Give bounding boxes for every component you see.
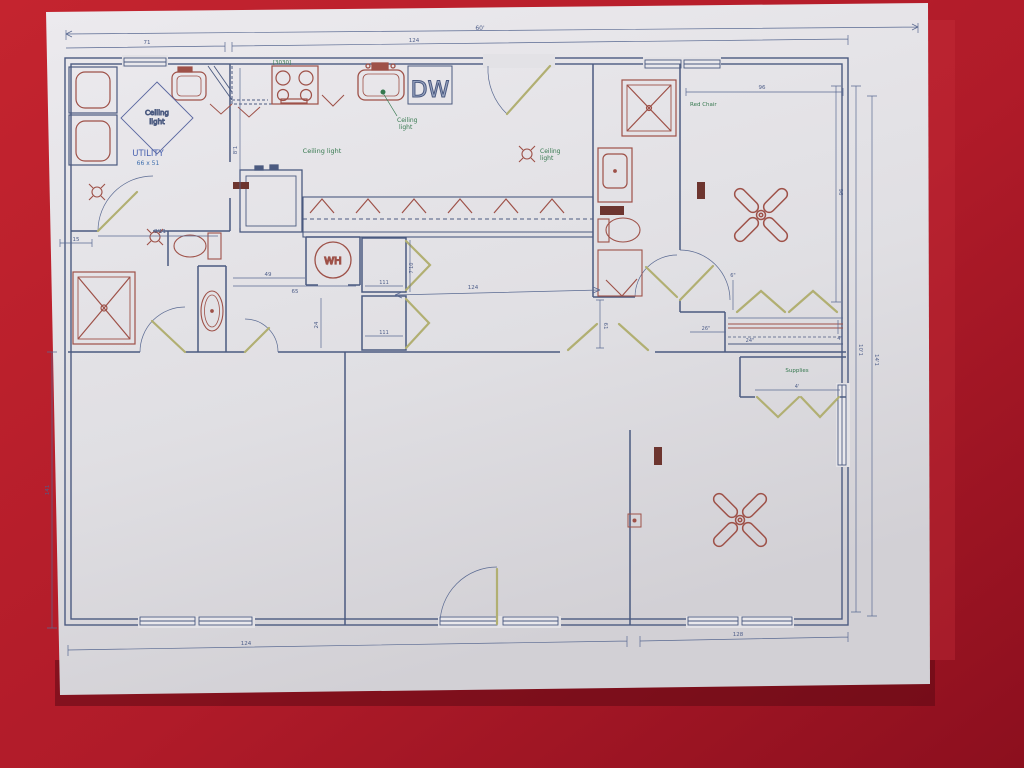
dim-label: 8'11: [154, 229, 166, 235]
dim-label: 124: [409, 38, 420, 44]
floor-vent: [654, 447, 662, 465]
dim-label: 96: [837, 189, 843, 196]
dim-label: 26": [702, 326, 711, 332]
dim-label: 49: [265, 272, 272, 278]
ceiling-light-label: Ceiling: [397, 117, 418, 124]
paper-sheet: [46, 3, 930, 695]
ceiling-light-label: Ceiling: [540, 148, 561, 155]
dishwasher-label: DW: [411, 78, 450, 103]
kitchen-vent: [233, 182, 249, 189]
floor-vent: [697, 182, 705, 199]
bath-vent: [600, 206, 624, 215]
dim-label: 96: [759, 85, 766, 91]
dim-label: 111: [379, 330, 389, 336]
dim-label: 60': [475, 25, 485, 32]
dim-label: 141: [45, 485, 51, 496]
dim-label: 4': [795, 384, 800, 390]
dim-label: 65: [292, 289, 299, 295]
dim-label: 7'10: [409, 263, 415, 274]
window: [688, 617, 738, 625]
red-chair-label: Red Chair: [690, 102, 717, 108]
window: [684, 60, 720, 68]
ceiling-light-label: light: [399, 124, 413, 131]
ceiling-light-label: light: [149, 118, 165, 126]
dim-label: 6": [730, 273, 735, 279]
ceiling-light-label: Ceiling light: [303, 147, 342, 155]
ceiling-light-label: light: [540, 155, 554, 162]
supplies-label: Supplies: [785, 368, 808, 374]
dim-label: 10'1: [857, 344, 863, 356]
water-heater-label: WH: [324, 256, 341, 267]
utility-room-label: UTILITY: [132, 149, 164, 159]
dim-label: 71: [144, 40, 151, 46]
dim-label: 14'1: [873, 354, 879, 366]
window: [199, 617, 252, 625]
window: [645, 60, 681, 68]
dim-label: 4": [837, 336, 842, 342]
dim-label: 24": [746, 338, 755, 344]
dim-label: 15: [73, 237, 80, 243]
window: [124, 58, 166, 66]
dim-label: 61: [602, 323, 608, 330]
window: [140, 617, 195, 625]
utility-size-label: 66 x 51: [137, 160, 160, 167]
dim-label: 8'1: [233, 146, 239, 155]
window: [440, 617, 497, 625]
dim-label: 124: [468, 285, 479, 291]
window-tag: [3030]: [273, 60, 291, 66]
ceiling-light-label: Ceiling: [145, 109, 169, 117]
dim-label: 124: [241, 641, 252, 647]
floor-plan-photo: DW WH: [0, 0, 1024, 768]
dim-label: 24: [314, 321, 320, 328]
dim-label: 111: [379, 280, 389, 286]
window: [742, 617, 792, 625]
window: [503, 617, 558, 625]
dim-label: 128: [733, 632, 744, 638]
